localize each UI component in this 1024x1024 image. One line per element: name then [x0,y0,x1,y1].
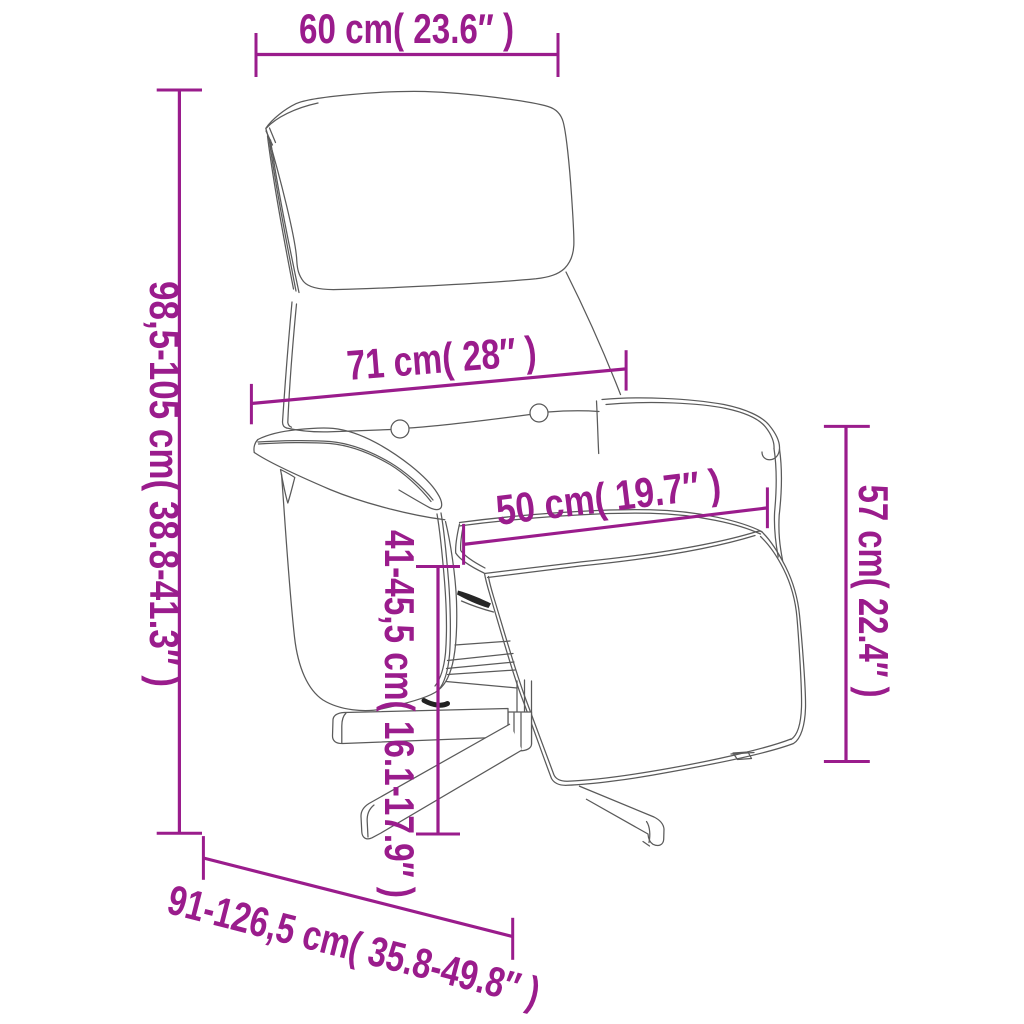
svg-text:41-45,5 cm( 16.1-17.9″ ): 41-45,5 cm( 16.1-17.9″ ) [376,530,423,898]
svg-text:57 cm( 22.4″ ): 57 cm( 22.4″ ) [850,485,897,698]
svg-text:98,5-105 cm( 38.8-41.3″ ): 98,5-105 cm( 38.8-41.3″ ) [141,281,188,687]
svg-text:60 cm( 23.6″ ): 60 cm( 23.6″ ) [299,5,514,52]
